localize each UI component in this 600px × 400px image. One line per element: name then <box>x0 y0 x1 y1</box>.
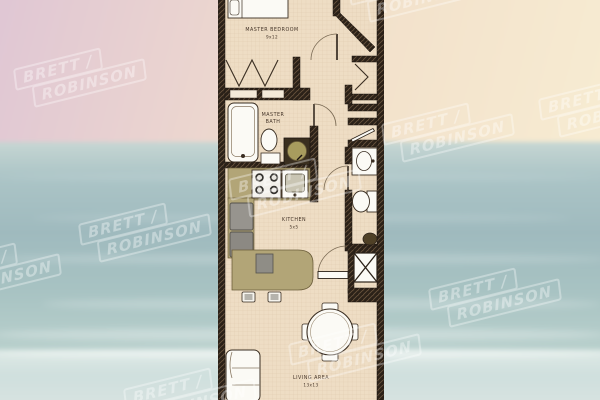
floor-plan: MASTER BEDROOM 9x12 MASTER BATH KITCHEN … <box>218 0 384 400</box>
kitchen-wall <box>310 168 318 202</box>
linen-closet-wall <box>348 118 377 125</box>
master-bath-label-line2: BATH <box>266 119 281 125</box>
bathtub <box>228 103 258 162</box>
kitchen-sink <box>282 170 308 198</box>
interior-wall <box>352 56 377 62</box>
closet-shelves <box>230 90 284 98</box>
hall-bath-wall <box>345 147 352 164</box>
master-bedroom-dims: 9x12 <box>266 35 278 40</box>
utility-closet-x <box>354 253 377 282</box>
utility-closet-wall <box>348 288 384 302</box>
bath-vanity-sink <box>284 138 310 165</box>
utility-closet-wall <box>348 248 354 293</box>
screenshot: MASTER BEDROOM 9x12 MASTER BATH KITCHEN … <box>0 0 600 400</box>
left-exterior-wall <box>218 0 225 400</box>
corner-fixture <box>363 233 377 245</box>
master-bedroom-label: MASTER BEDROOM <box>245 27 298 33</box>
master-bath-label-line1: MASTER <box>262 112 285 118</box>
breakfast-bar <box>232 250 313 290</box>
kitchen-dims: 5x5 <box>289 225 298 230</box>
living-area-label: LIVING AREA <box>293 375 329 381</box>
interior-wall <box>345 85 352 104</box>
interior-wall <box>352 94 377 100</box>
hall-bath-toilet <box>353 191 378 212</box>
hall-bath-wall <box>345 190 352 244</box>
range-stove <box>252 170 281 198</box>
sofa <box>226 350 260 400</box>
linen-closet-wall <box>348 104 377 111</box>
right-exterior-wall <box>377 0 384 400</box>
hall-bath-vanity <box>352 148 377 175</box>
living-area-dims: 13x13 <box>303 383 318 388</box>
bath-wall <box>310 126 318 168</box>
bed <box>228 0 288 18</box>
kitchen-label: KITCHEN <box>282 217 306 223</box>
refrigerator <box>230 203 253 257</box>
